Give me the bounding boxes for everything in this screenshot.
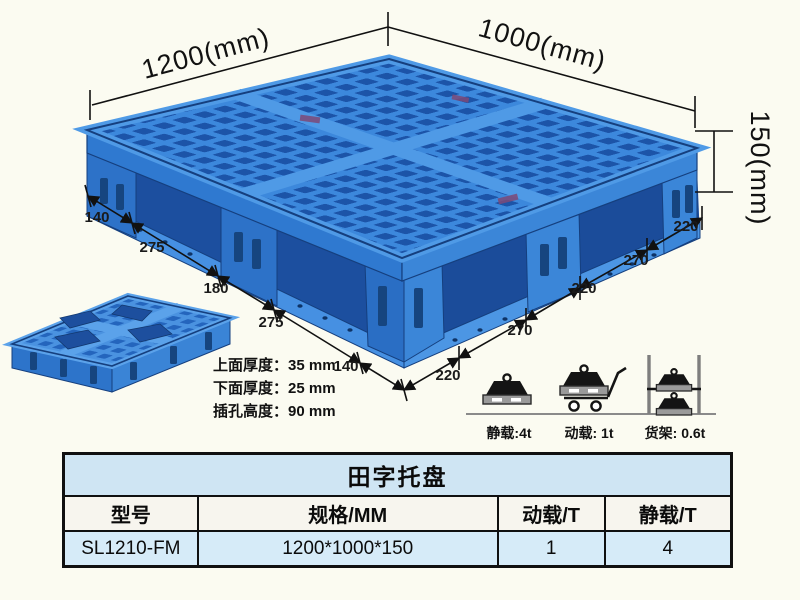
rack-load-label: 货架: 0.6t	[645, 423, 706, 443]
dim-left-2: 180	[203, 280, 228, 297]
header-static-load: 静载/T	[605, 496, 732, 531]
spec-table: 田字托盘 型号 规格/MM 动载/T 静载/T SL1210-FM 1200*1…	[62, 452, 733, 568]
header-dynamic-load: 动载/T	[498, 496, 605, 531]
table-header-row: 型号 规格/MM 动载/T 静载/T	[64, 496, 732, 531]
dynamic-load-icon	[560, 365, 626, 410]
header-model: 型号	[64, 496, 198, 531]
dim-right-4: 220	[673, 218, 698, 235]
load-rating-icons	[466, 355, 716, 415]
table-title: 田字托盘	[64, 454, 732, 497]
spec-cell: 1200*1000*150	[198, 531, 498, 567]
thickness-specs: 上面厚度：35 mm 下面厚度：25 mm 插孔高度：90 mm	[213, 354, 413, 423]
dynamic-load-label: 动载: 1t	[565, 423, 614, 443]
model-cell: SL1210-FM	[64, 531, 198, 567]
dim-left-0: 140	[84, 209, 109, 226]
static-load-icon	[483, 374, 531, 404]
small-pallet-image	[12, 296, 230, 392]
fork-hole-height-spec: 插孔高度：90 mm	[213, 400, 413, 423]
dim-right-3: 270	[623, 252, 648, 269]
dim-label-150: 150(mm)	[745, 110, 775, 225]
dim-left-3: 275	[258, 314, 283, 331]
bottom-thickness-spec: 下面厚度：25 mm	[213, 377, 413, 400]
dim-left-1: 275	[139, 239, 164, 256]
static-load-cell: 4	[605, 531, 732, 567]
dim-right-0: 220	[435, 367, 460, 384]
dim-right-2: 220	[571, 280, 596, 297]
dim-label-1000: 1000(mm)	[475, 12, 609, 76]
table-data-row: SL1210-FM 1200*1000*150 1 4	[64, 531, 732, 567]
table-title-row: 田字托盘	[64, 454, 732, 497]
top-thickness-spec: 上面厚度：35 mm	[213, 354, 413, 377]
rack-load-icon	[647, 355, 701, 415]
dim-right-1: 270	[507, 322, 532, 339]
dynamic-load-cell: 1	[498, 531, 605, 567]
product-sheet: 1200(mm) 1000(mm) 150(mm) 140 275 180 27…	[0, 0, 800, 600]
header-spec: 规格/MM	[198, 496, 498, 531]
static-load-label: 静载:4t	[486, 423, 531, 443]
